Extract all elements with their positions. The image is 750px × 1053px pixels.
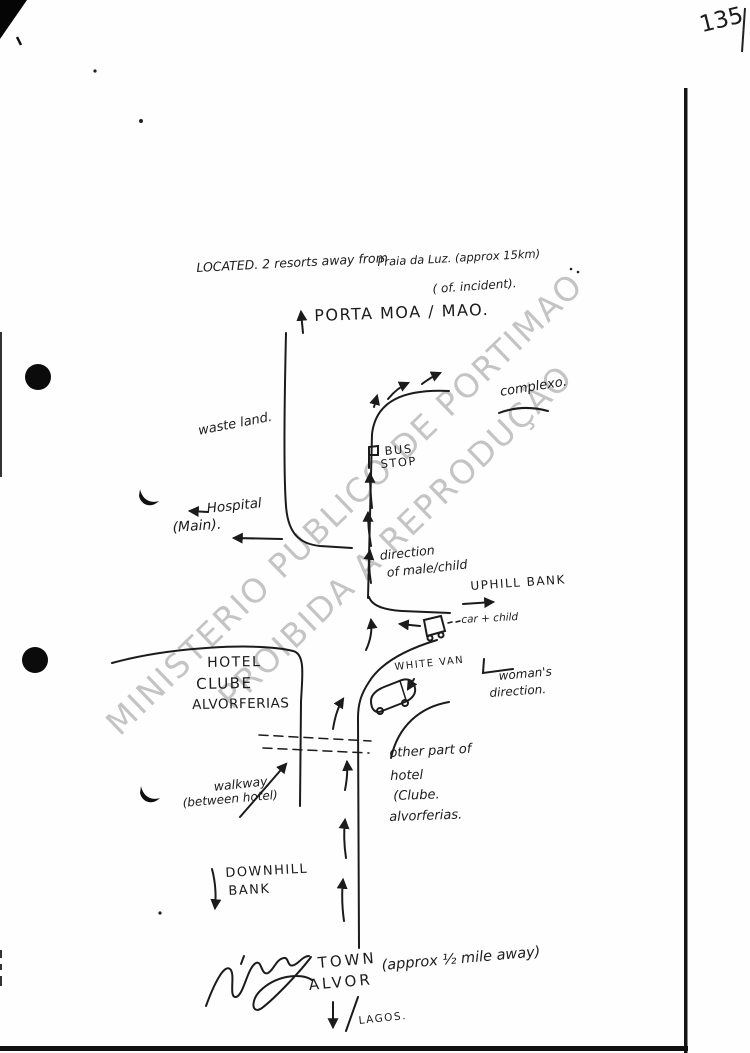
other-part-label-2: hotel	[390, 768, 423, 784]
road-main-bend	[369, 597, 450, 613]
up-arrow-icon	[366, 620, 371, 650]
sketch-map	[0, 0, 750, 1053]
curve-arrow-icon	[422, 373, 440, 384]
page-edge-left3	[0, 964, 2, 970]
speck	[158, 911, 161, 914]
page-edge-right	[684, 88, 688, 1053]
hole-punch	[22, 647, 48, 673]
hotel-label-2: CLUBE	[196, 674, 253, 693]
walkway-dashed-line	[263, 748, 369, 753]
speck	[570, 268, 573, 271]
page-edge-left4	[0, 976, 2, 986]
up-arrow-icon	[301, 312, 303, 333]
corner-fold-mark	[0, 0, 27, 39]
curve-arrow-icon	[333, 699, 343, 729]
speck	[93, 69, 96, 72]
down-arrow-icon	[212, 869, 216, 908]
other-part-label-4: alvorferias.	[389, 807, 462, 825]
crescent-mark	[140, 786, 160, 802]
downhill-label-2: BANK	[228, 882, 271, 899]
curve-arrow-icon	[388, 383, 408, 399]
slash-stroke	[346, 997, 358, 1031]
road-left-top	[285, 333, 353, 548]
left-arrow-icon	[400, 624, 420, 626]
underline-stroke	[499, 408, 548, 413]
page-edge-left2	[0, 950, 2, 958]
signature-scribble	[206, 956, 312, 1010]
up-arrow-icon	[369, 551, 371, 583]
hospital-main-label: (Main).	[172, 517, 222, 536]
up-arrow-icon	[344, 820, 346, 858]
walkway-dashed-line	[259, 735, 371, 741]
crescent-mark	[139, 489, 159, 505]
van-icon	[371, 679, 415, 714]
page-edge-bottom	[0, 1046, 688, 1051]
up-arrow-icon	[374, 396, 377, 407]
other-part-label-3: (Clube.	[393, 787, 440, 804]
hotel-label-1: HOTEL	[207, 654, 262, 671]
hole-punch	[25, 364, 51, 390]
pen-tick	[17, 37, 21, 45]
right-arrow-icon	[463, 602, 493, 604]
left-arrow-icon	[190, 511, 208, 512]
speck	[139, 119, 143, 123]
scanned-document-page: MINISTERIO PUBLICO DE PORTIMAO PROIBIDA …	[0, 0, 750, 1053]
page-edge-left	[0, 332, 2, 477]
speck	[577, 271, 580, 274]
left-arrow-icon	[234, 538, 282, 539]
up-arrow-icon	[345, 762, 347, 790]
car-icon	[424, 616, 460, 641]
hotel-label-3: ALVORFERIAS	[192, 695, 290, 713]
up-arrow-icon	[342, 880, 344, 921]
